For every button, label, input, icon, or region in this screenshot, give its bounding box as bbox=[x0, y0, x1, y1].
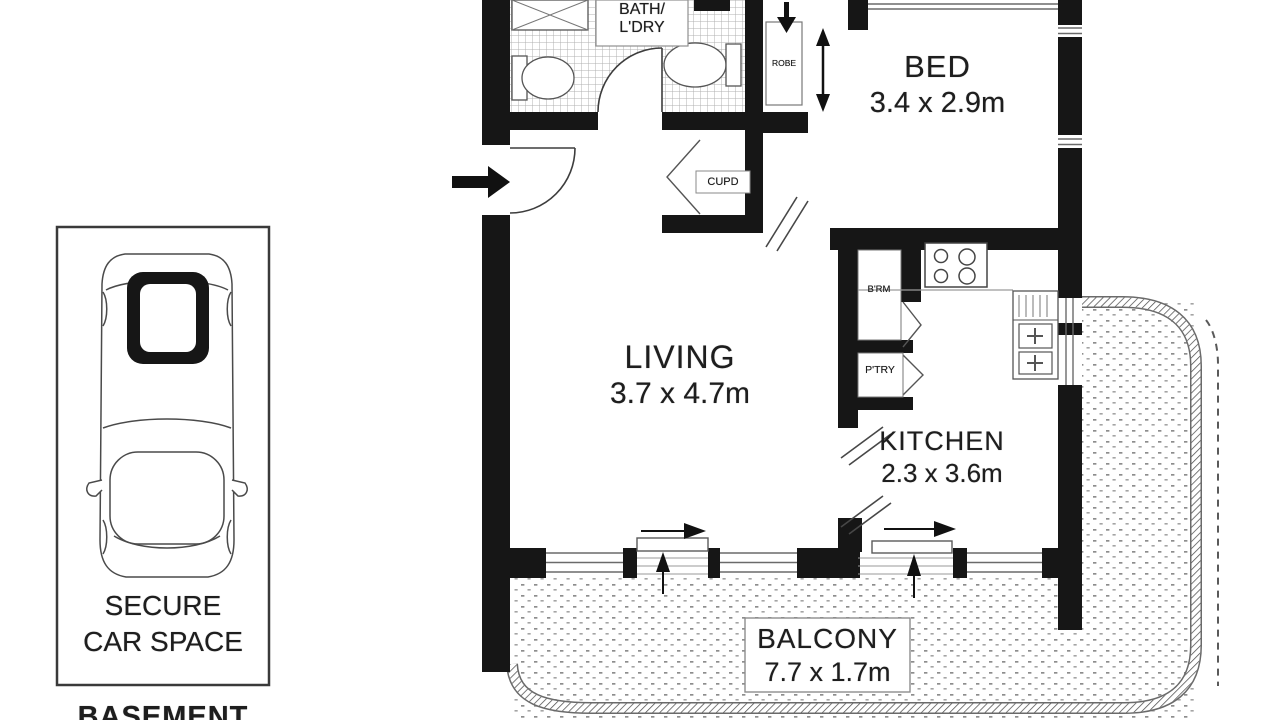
balcony-name: BALCONY bbox=[745, 621, 910, 657]
car-space-label: SECURE CAR SPACE bbox=[57, 588, 269, 660]
bed-room-label: BED 3.4 x 2.9m bbox=[840, 48, 1035, 120]
living-room-name: LIVING bbox=[580, 337, 780, 377]
pantry-label: P'TRY bbox=[856, 364, 904, 376]
car-icon bbox=[87, 254, 247, 577]
bed-door-swing-marks bbox=[766, 197, 808, 251]
living-room-dims: 3.7 x 4.7m bbox=[580, 377, 780, 411]
bed-room-dims: 3.4 x 2.9m bbox=[840, 86, 1035, 120]
stove-icon bbox=[925, 243, 987, 287]
broom-cupboard-label: B'RM bbox=[856, 284, 902, 295]
car-space-line1: SECURE bbox=[57, 588, 269, 624]
robe-double-arrow-icon bbox=[816, 28, 830, 112]
balcony-dims: 7.7 x 1.7m bbox=[745, 657, 910, 688]
kitchen-room-name: KITCHEN bbox=[844, 424, 1040, 458]
terrace-dashed-boundary bbox=[1206, 320, 1218, 686]
cupboard-label: CUPD bbox=[696, 176, 750, 188]
bath-label-line1: BATH/ bbox=[596, 1, 688, 19]
bath-label-line2: L'DRY bbox=[596, 19, 688, 37]
living-room-label: LIVING 3.7 x 4.7m bbox=[580, 337, 780, 411]
entry-arrow-icon bbox=[452, 166, 510, 198]
bath-label: BATH/ L'DRY bbox=[596, 1, 688, 37]
entry-door-arc bbox=[510, 148, 575, 213]
robe-label: ROBE bbox=[766, 58, 802, 68]
pantry-door bbox=[903, 355, 923, 395]
bed-room-name: BED bbox=[840, 48, 1035, 86]
sliding-door-kitchen bbox=[858, 541, 953, 574]
sliding-door-living bbox=[637, 538, 708, 574]
basin-icon bbox=[512, 56, 574, 100]
floor-plan-page: BATH/ L'DRY ROBE CUPD BED 3.4 x 2.9m LIV… bbox=[0, 0, 1280, 720]
bathtub-icon bbox=[512, 0, 588, 30]
toilet-icon bbox=[664, 43, 741, 87]
kitchen-room-label: KITCHEN 2.3 x 3.6m bbox=[844, 424, 1040, 488]
car-space-line2: CAR SPACE bbox=[57, 624, 269, 660]
kitchen-room-dims: 2.3 x 3.6m bbox=[844, 458, 1040, 488]
basement-label: BASEMENT bbox=[57, 701, 269, 720]
balcony-label: BALCONY 7.7 x 1.7m bbox=[745, 621, 910, 688]
sink-icon bbox=[1013, 291, 1058, 379]
